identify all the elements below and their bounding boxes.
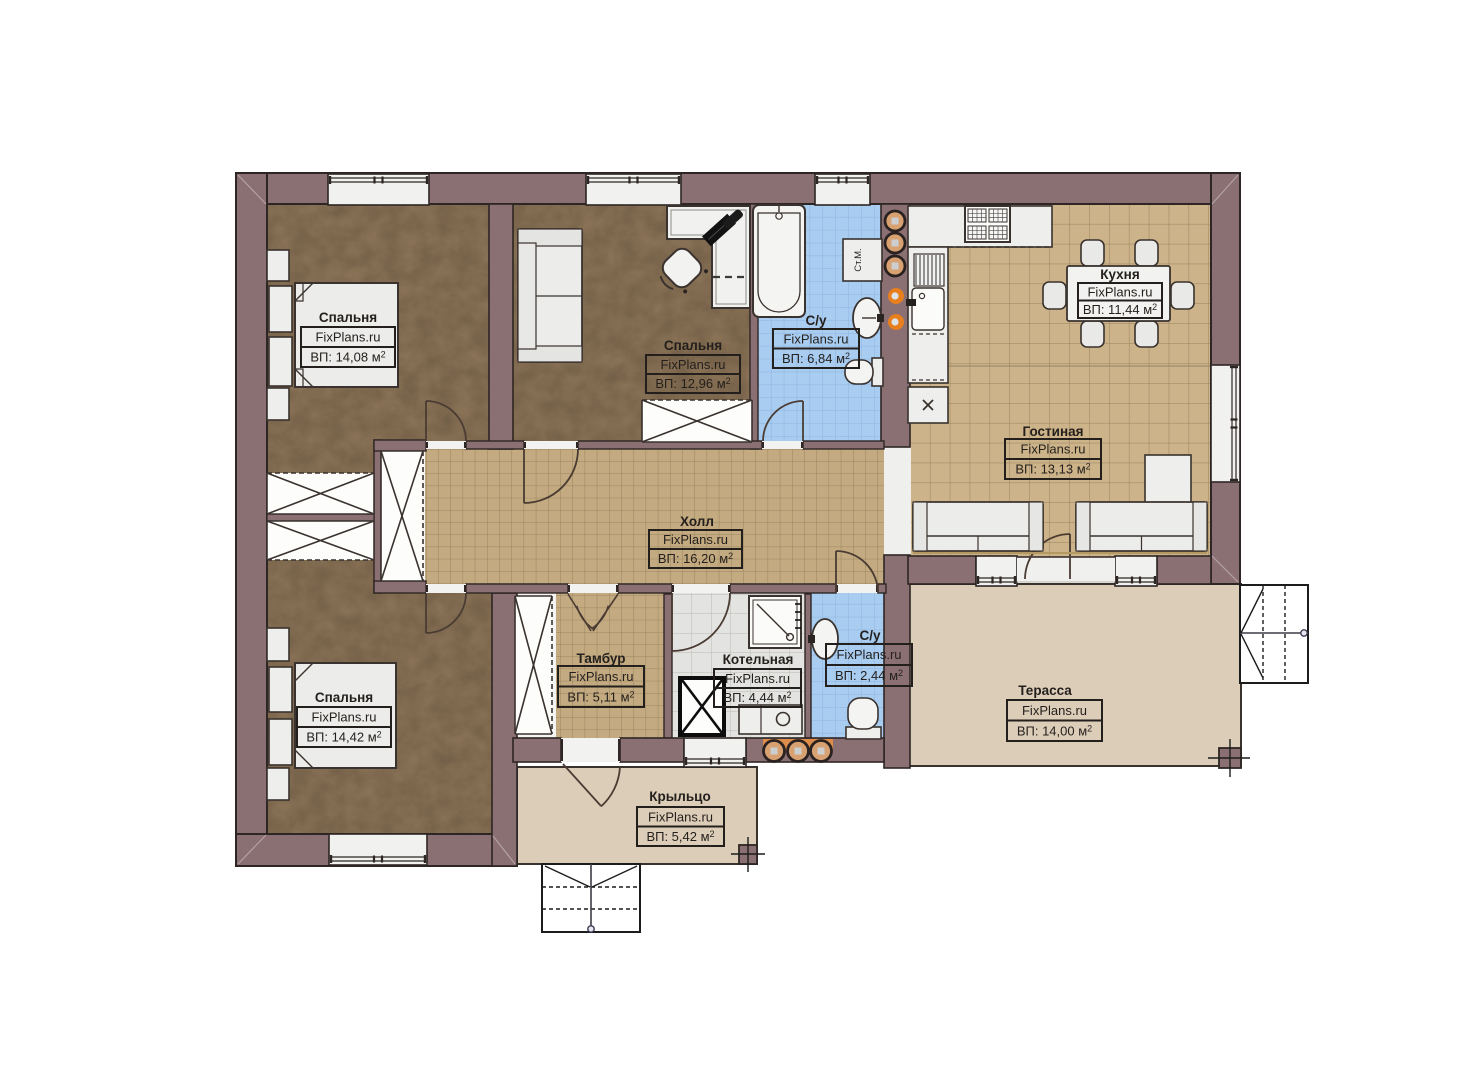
svg-text:FixPlans.ru: FixPlans.ru <box>663 532 728 547</box>
svg-text:ВП: 5,42 м2: ВП: 5,42 м2 <box>646 829 714 844</box>
svg-text:Терасса: Терасса <box>1018 683 1072 698</box>
svg-text:Крыльцо: Крыльцо <box>649 789 710 804</box>
svg-text:FixPlans.ru: FixPlans.ru <box>1087 284 1152 299</box>
svg-text:ВП: 4,44 м2: ВП: 4,44 м2 <box>723 690 791 705</box>
svg-text:Ст.М.: Ст.М. <box>853 248 864 271</box>
svg-text:Котельная: Котельная <box>723 652 794 667</box>
svg-text:FixPlans.ru: FixPlans.ru <box>660 357 725 372</box>
svg-text:ВП: 11,44 м2: ВП: 11,44 м2 <box>1083 302 1157 317</box>
svg-text:FixPlans.ru: FixPlans.ru <box>568 669 633 684</box>
svg-text:FixPlans.ru: FixPlans.ru <box>725 671 790 686</box>
svg-text:ВП: 14,42 м2: ВП: 14,42 м2 <box>306 730 381 745</box>
svg-text:ВП: 12,96 м2: ВП: 12,96 м2 <box>655 376 730 391</box>
svg-text:ВП: 5,11 м2: ВП: 5,11 м2 <box>567 689 634 704</box>
svg-text:Спальня: Спальня <box>315 690 373 705</box>
svg-text:Спальня: Спальня <box>319 310 377 325</box>
svg-text:ВП: 16,20 м2: ВП: 16,20 м2 <box>658 551 733 566</box>
svg-text:С/у: С/у <box>805 313 827 328</box>
svg-text:Гостиная: Гостиная <box>1022 424 1083 439</box>
svg-text:ВП: 14,00 м2: ВП: 14,00 м2 <box>1017 723 1092 738</box>
svg-text:ВП: 14,08 м2: ВП: 14,08 м2 <box>310 350 385 365</box>
svg-text:Кухня: Кухня <box>1100 267 1139 282</box>
svg-text:FixPlans.ru: FixPlans.ru <box>311 710 376 725</box>
svg-text:FixPlans.ru: FixPlans.ru <box>1020 442 1085 457</box>
svg-text:Тамбур: Тамбур <box>577 651 626 666</box>
svg-text:ВП: 13,13 м2: ВП: 13,13 м2 <box>1015 462 1090 477</box>
svg-text:ВП: 6,84 м2: ВП: 6,84 м2 <box>782 351 850 366</box>
svg-text:Спальня: Спальня <box>664 338 722 353</box>
svg-text:С/у: С/у <box>859 628 881 643</box>
svg-text:FixPlans.ru: FixPlans.ru <box>783 331 848 346</box>
svg-text:FixPlans.ru: FixPlans.ru <box>1022 703 1087 718</box>
svg-text:Холл: Холл <box>680 514 714 529</box>
svg-text:FixPlans.ru: FixPlans.ru <box>648 809 713 824</box>
svg-text:FixPlans.ru: FixPlans.ru <box>836 647 901 662</box>
svg-text:ВП: 2,44 м2: ВП: 2,44 м2 <box>835 668 903 683</box>
svg-text:FixPlans.ru: FixPlans.ru <box>315 330 380 345</box>
